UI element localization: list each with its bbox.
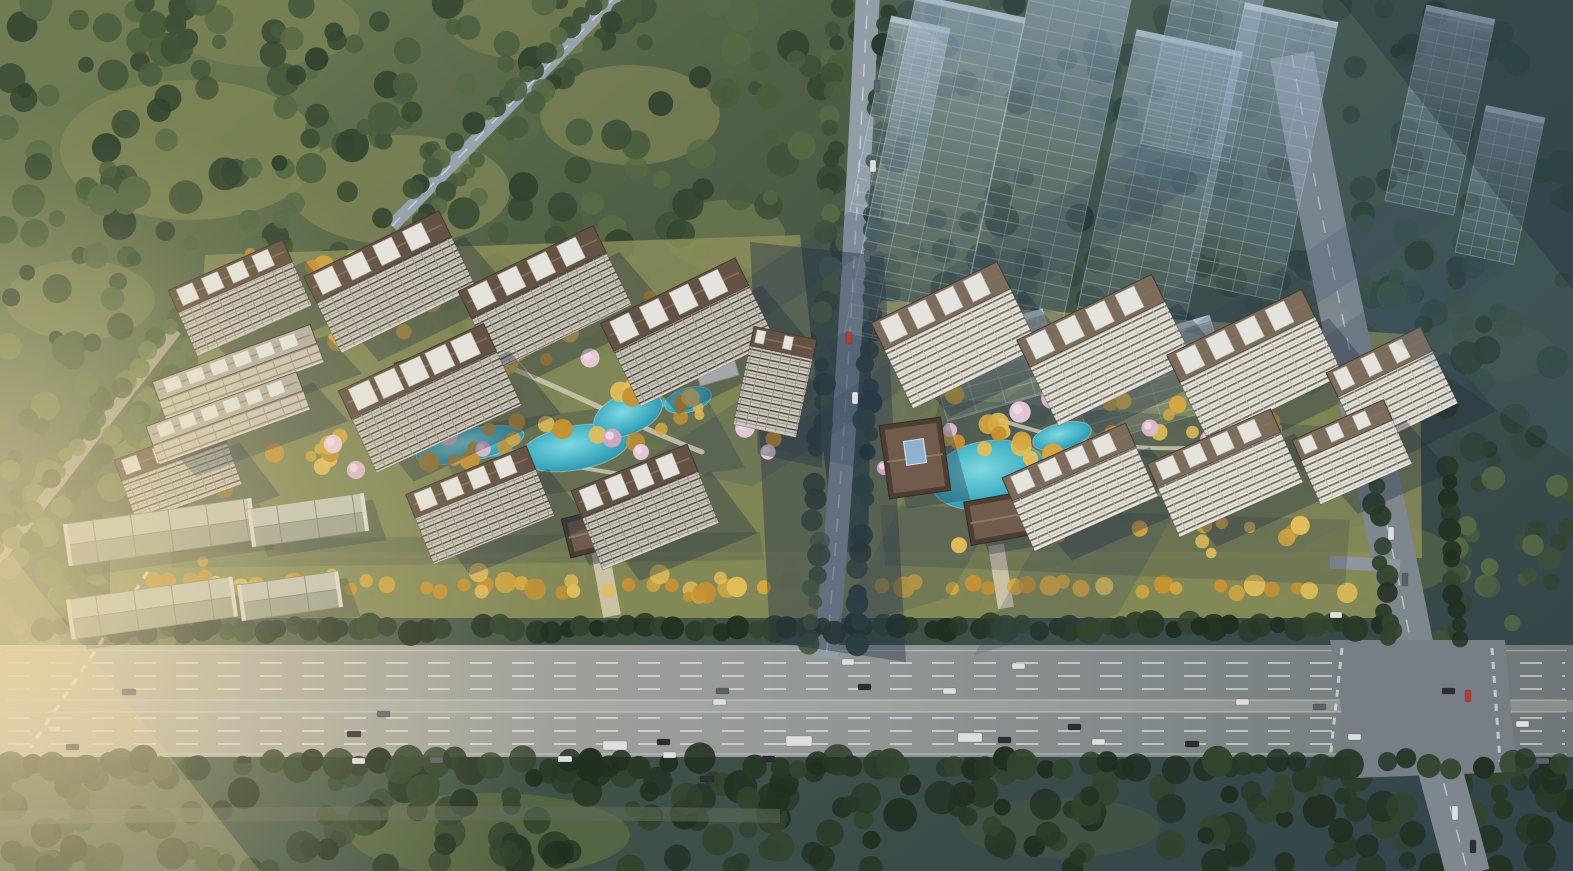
aerial-render-stage — [0, 0, 1573, 871]
atmosphere-tint — [0, 0, 1573, 871]
lighting-overlays — [0, 0, 1573, 871]
aerial-render-canvas — [0, 0, 1573, 871]
